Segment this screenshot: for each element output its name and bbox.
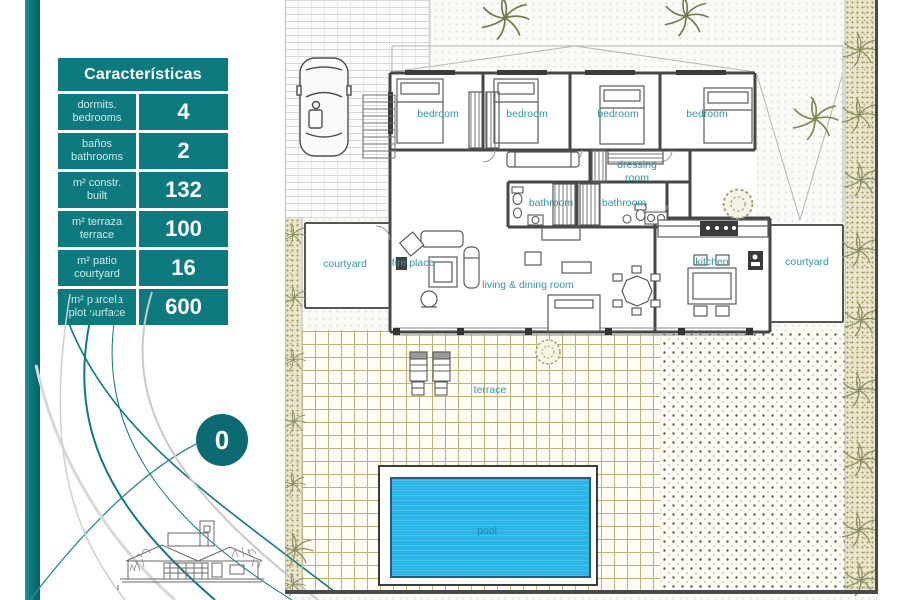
label-courtyard-left: courtyard [323, 258, 367, 270]
car [297, 58, 351, 156]
label-courtyard-right: courtyard [785, 256, 829, 268]
label-fire-place: fire place [392, 257, 435, 269]
floor-plan: bedroom bedroom bedroom bedroom dressing… [285, 0, 878, 600]
brochure-page: Características dormits. bedrooms 4 baño… [0, 0, 899, 600]
label-bedroom-4: bedroom [686, 108, 727, 120]
label-bedroom-2: bedroom [506, 108, 547, 120]
house-elevation-sketch [112, 505, 272, 593]
label-living-dining: living & dining room [482, 279, 574, 291]
label-pool: pool [477, 525, 497, 537]
living-furniture [400, 152, 600, 331]
label-bedroom-3: bedroom [597, 108, 638, 120]
label-bathroom-2: bathroom [602, 197, 646, 209]
sun-loungers [410, 352, 450, 395]
label-bathroom-1: bathroom [529, 197, 573, 209]
oven-column [748, 251, 763, 270]
label-dressing-room: dressing room [608, 159, 666, 185]
dining-set [613, 266, 660, 315]
level-badge-number: 0 [215, 425, 229, 456]
plot-border-bottom [285, 590, 878, 594]
label-terrace: terrace [474, 384, 507, 396]
label-kitchen: kitchen [695, 256, 728, 268]
label-bedroom-1: bedroom [417, 108, 458, 120]
stove [700, 221, 738, 236]
plot-border-right [875, 0, 878, 592]
level-badge: 0 [196, 414, 248, 466]
